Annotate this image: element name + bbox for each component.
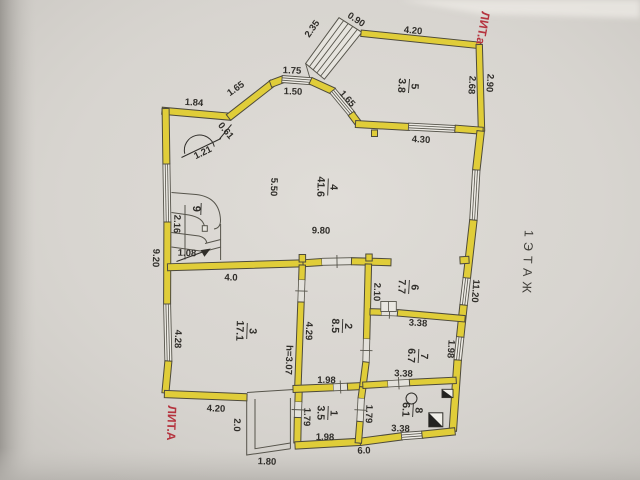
svg-text:11.20: 11.20: [469, 279, 482, 303]
svg-text:9: 9: [190, 206, 202, 213]
svg-text:1.08: 1.08: [178, 248, 197, 260]
svg-text:1.98: 1.98: [317, 375, 336, 386]
svg-text:4.20: 4.20: [403, 25, 422, 38]
svg-text:3: 3: [246, 328, 258, 334]
svg-text:3.8: 3.8: [395, 78, 408, 94]
svg-text:4.28: 4.28: [172, 330, 184, 349]
svg-text:5: 5: [408, 83, 420, 90]
svg-text:3.38: 3.38: [408, 318, 427, 330]
svg-text:17.1: 17.1: [233, 320, 246, 341]
svg-text:9.80: 9.80: [312, 225, 331, 236]
svg-text:1.75: 1.75: [283, 65, 303, 77]
svg-text:8.5: 8.5: [329, 318, 342, 333]
svg-text:7: 7: [418, 353, 430, 360]
svg-text:2.0: 2.0: [231, 418, 242, 432]
svg-text:1.50: 1.50: [284, 86, 303, 98]
svg-text:6.1: 6.1: [399, 402, 412, 417]
svg-text:1.80: 1.80: [258, 456, 277, 468]
svg-text:1: 1: [327, 410, 339, 416]
svg-text:4.29: 4.29: [303, 322, 315, 341]
svg-text:1.79: 1.79: [363, 405, 375, 424]
svg-text:h=3.07: h=3.07: [282, 345, 294, 375]
svg-text:9.20: 9.20: [150, 249, 162, 268]
svg-text:6.0: 6.0: [357, 445, 371, 456]
svg-text:5.50: 5.50: [268, 178, 280, 197]
svg-text:1.79: 1.79: [301, 408, 313, 427]
svg-text:6: 6: [408, 284, 420, 291]
svg-text:3.5: 3.5: [314, 405, 327, 420]
svg-text:2.16: 2.16: [171, 215, 183, 234]
svg-text:2.68: 2.68: [465, 75, 477, 94]
svg-text:3.38: 3.38: [394, 368, 413, 380]
svg-text:1.98: 1.98: [316, 432, 335, 443]
svg-text:3.38: 3.38: [391, 423, 410, 435]
svg-text:8: 8: [412, 407, 424, 414]
svg-text:4.0: 4.0: [224, 272, 237, 283]
svg-text:2: 2: [342, 323, 354, 329]
svg-text:4: 4: [327, 184, 339, 190]
svg-text:4.20: 4.20: [207, 403, 226, 415]
svg-text:6.7: 6.7: [405, 348, 418, 363]
svg-text:7.7: 7.7: [395, 279, 408, 294]
svg-text:2.90: 2.90: [483, 73, 495, 92]
svg-text:4.30: 4.30: [411, 134, 430, 146]
svg-text:1.98: 1.98: [444, 339, 456, 358]
svg-text:1ЭТАЖ: 1ЭТАЖ: [519, 230, 535, 298]
svg-text:ЛИТ.А: ЛИТ.А: [164, 405, 179, 441]
svg-text:41.6: 41.6: [314, 176, 327, 197]
svg-text:1.84: 1.84: [184, 97, 204, 109]
svg-text:2.10: 2.10: [371, 283, 383, 302]
